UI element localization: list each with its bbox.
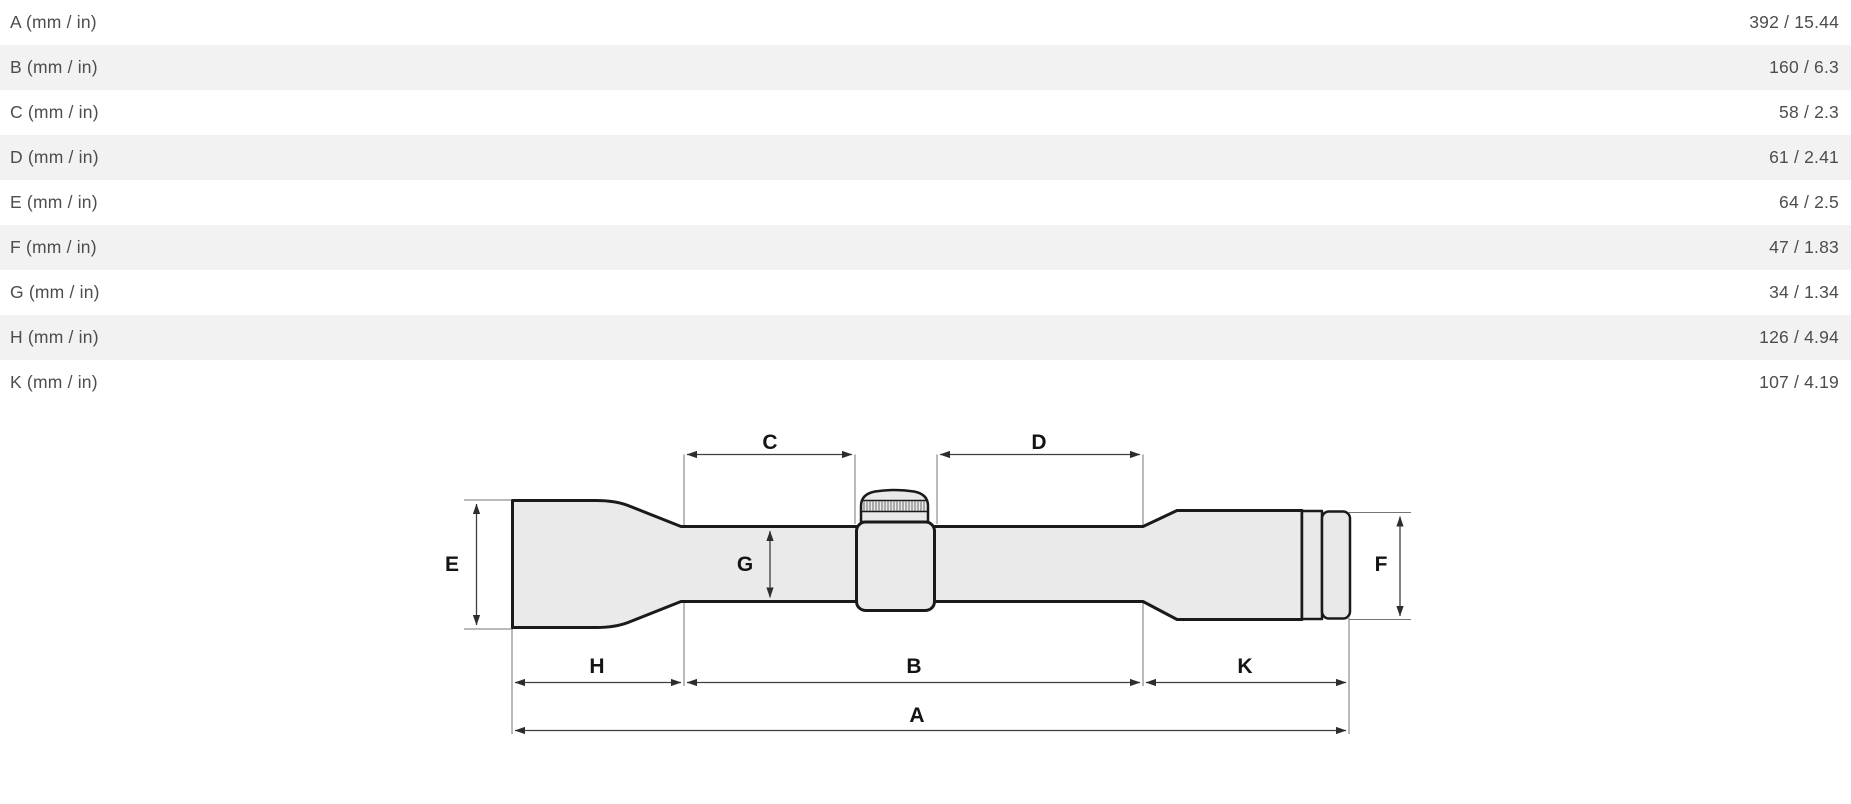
dimension-label: C (mm / in): [10, 102, 99, 123]
label-c: C: [762, 431, 777, 454]
dimension-value: 392 / 15.44: [1749, 12, 1839, 33]
eyecup: [1322, 512, 1350, 619]
table-row: E (mm / in) 64 / 2.5: [0, 180, 1851, 225]
dimension-label: K (mm / in): [10, 372, 98, 393]
dimension-label: F (mm / in): [10, 237, 97, 258]
dimension-label: A (mm / in): [10, 12, 97, 33]
label-b: B: [906, 655, 921, 678]
dimension-value: 34 / 1.34: [1769, 282, 1839, 303]
dimension-value: 61 / 2.41: [1769, 147, 1839, 168]
table-row: B (mm / in) 160 / 6.3: [0, 45, 1851, 90]
dimension-value: 126 / 4.94: [1759, 327, 1839, 348]
eyepiece-ring: [1302, 511, 1322, 619]
dimension-label: D (mm / in): [10, 147, 99, 168]
table-row: H (mm / in) 126 / 4.94: [0, 315, 1851, 360]
dimension-value: 160 / 6.3: [1769, 57, 1839, 78]
label-g: G: [737, 553, 753, 576]
label-e: E: [445, 553, 459, 576]
dimension-label: H (mm / in): [10, 327, 99, 348]
label-k: K: [1237, 655, 1252, 678]
dimension-value: 47 / 1.83: [1769, 237, 1839, 258]
dimension-value: 58 / 2.3: [1779, 102, 1839, 123]
scope-body: [513, 490, 1351, 628]
label-h: H: [589, 655, 604, 678]
dimension-label: G (mm / in): [10, 282, 100, 303]
table-row: F (mm / in) 47 / 1.83: [0, 225, 1851, 270]
table-row: K (mm / in) 107 / 4.19: [0, 360, 1851, 405]
label-f: F: [1375, 553, 1388, 576]
dimension-value: 64 / 2.5: [1779, 192, 1839, 213]
dimension-value: 107 / 4.19: [1759, 372, 1839, 393]
dimension-label: E (mm / in): [10, 192, 98, 213]
dimension-spec-table: A (mm / in) 392 / 15.44 B (mm / in) 160 …: [0, 0, 1851, 405]
dimension-label: B (mm / in): [10, 57, 98, 78]
scope-dimension-diagram: C D E G F H B K A: [0, 405, 1851, 799]
table-row: D (mm / in) 61 / 2.41: [0, 135, 1851, 180]
turret-knurling: [864, 502, 924, 512]
table-row: G (mm / in) 34 / 1.34: [0, 270, 1851, 315]
label-d: D: [1031, 431, 1046, 454]
turret-saddle: [857, 522, 935, 611]
scope-diagram-svg: C D E G F H B K A: [0, 405, 1851, 799]
table-row: C (mm / in) 58 / 2.3: [0, 90, 1851, 135]
table-row: A (mm / in) 392 / 15.44: [0, 0, 1851, 45]
label-a: A: [909, 704, 924, 727]
